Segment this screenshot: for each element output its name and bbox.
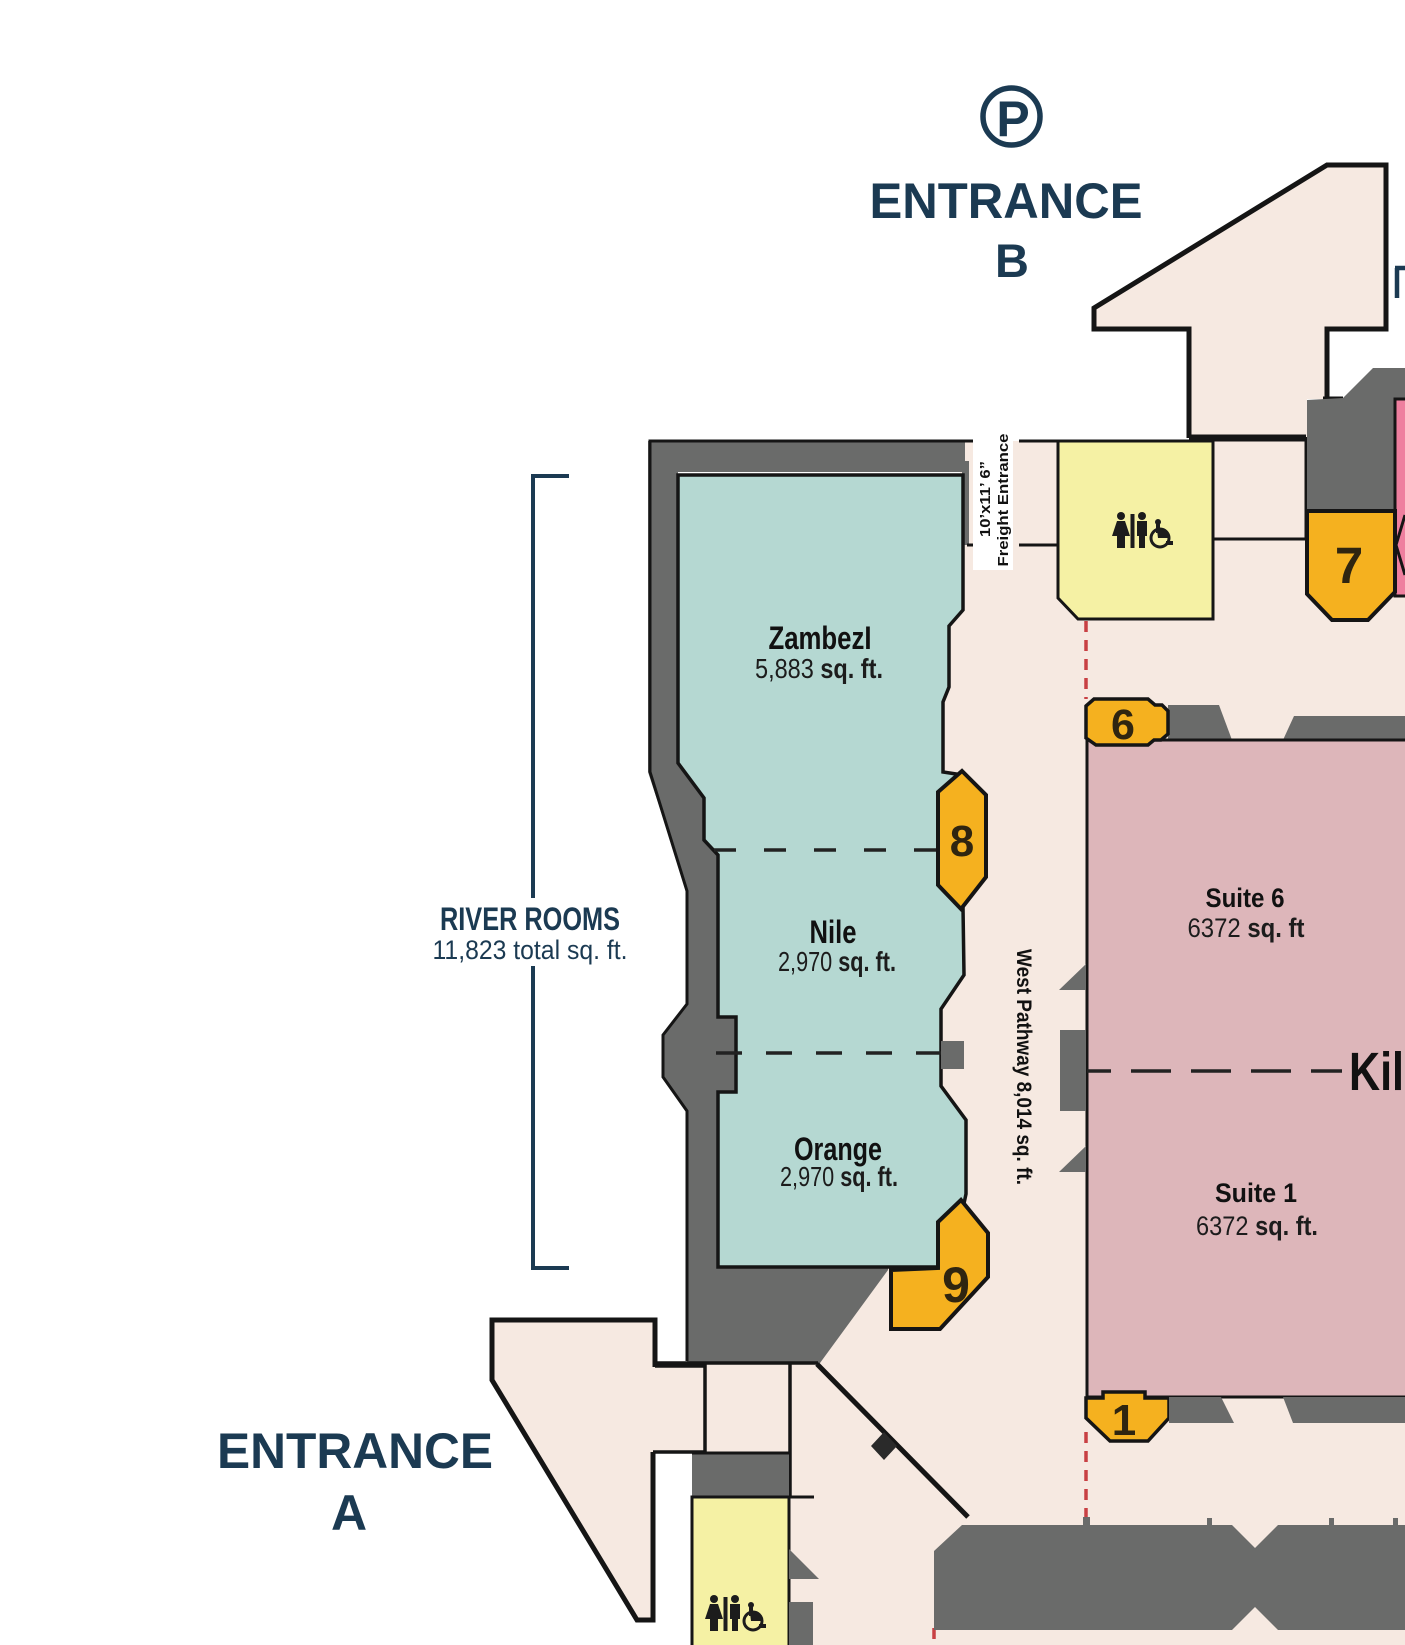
svg-text:Suite 1: Suite 1 bbox=[1215, 1178, 1297, 1208]
svg-text:Nile: Nile bbox=[810, 914, 857, 950]
svg-text:P: P bbox=[996, 91, 1029, 147]
svg-text:10’x11’ 6”: 10’x11’ 6” bbox=[978, 461, 994, 537]
svg-text:2,970 sq. ft.: 2,970 sq. ft. bbox=[778, 946, 896, 977]
svg-text:5,883 sq. ft.: 5,883 sq. ft. bbox=[755, 653, 883, 684]
svg-text:Suite 6: Suite 6 bbox=[1206, 883, 1285, 913]
svg-text:8: 8 bbox=[950, 817, 974, 866]
svg-text:West Pathway 8,014 sq. ft.: West Pathway 8,014 sq. ft. bbox=[1012, 949, 1035, 1185]
svg-text:11,823 total sq. ft.: 11,823 total sq. ft. bbox=[433, 935, 628, 965]
svg-text:2,970 sq. ft.: 2,970 sq. ft. bbox=[780, 1161, 898, 1192]
svg-text:6: 6 bbox=[1111, 701, 1135, 749]
svg-text:B: B bbox=[995, 234, 1029, 287]
svg-text:6372 sq. ft.: 6372 sq. ft. bbox=[1196, 1211, 1318, 1241]
svg-text:Freight Entrance: Freight Entrance bbox=[996, 434, 1012, 567]
svg-text:Kil: Kil bbox=[1349, 1042, 1404, 1102]
svg-text:1: 1 bbox=[1112, 1396, 1136, 1445]
svg-text:6372 sq. ft: 6372 sq. ft bbox=[1188, 913, 1305, 943]
svg-text:ENTRANCE: ENTRANCE bbox=[217, 1423, 493, 1479]
svg-text:9: 9 bbox=[942, 1257, 970, 1313]
svg-text:7: 7 bbox=[1335, 537, 1363, 594]
svg-text:ZambezI: ZambezI bbox=[769, 620, 872, 656]
svg-text:ENTRANCE: ENTRANCE bbox=[870, 173, 1143, 229]
svg-text:A: A bbox=[331, 1485, 367, 1541]
svg-text:RIVER ROOMS: RIVER ROOMS bbox=[440, 901, 620, 937]
